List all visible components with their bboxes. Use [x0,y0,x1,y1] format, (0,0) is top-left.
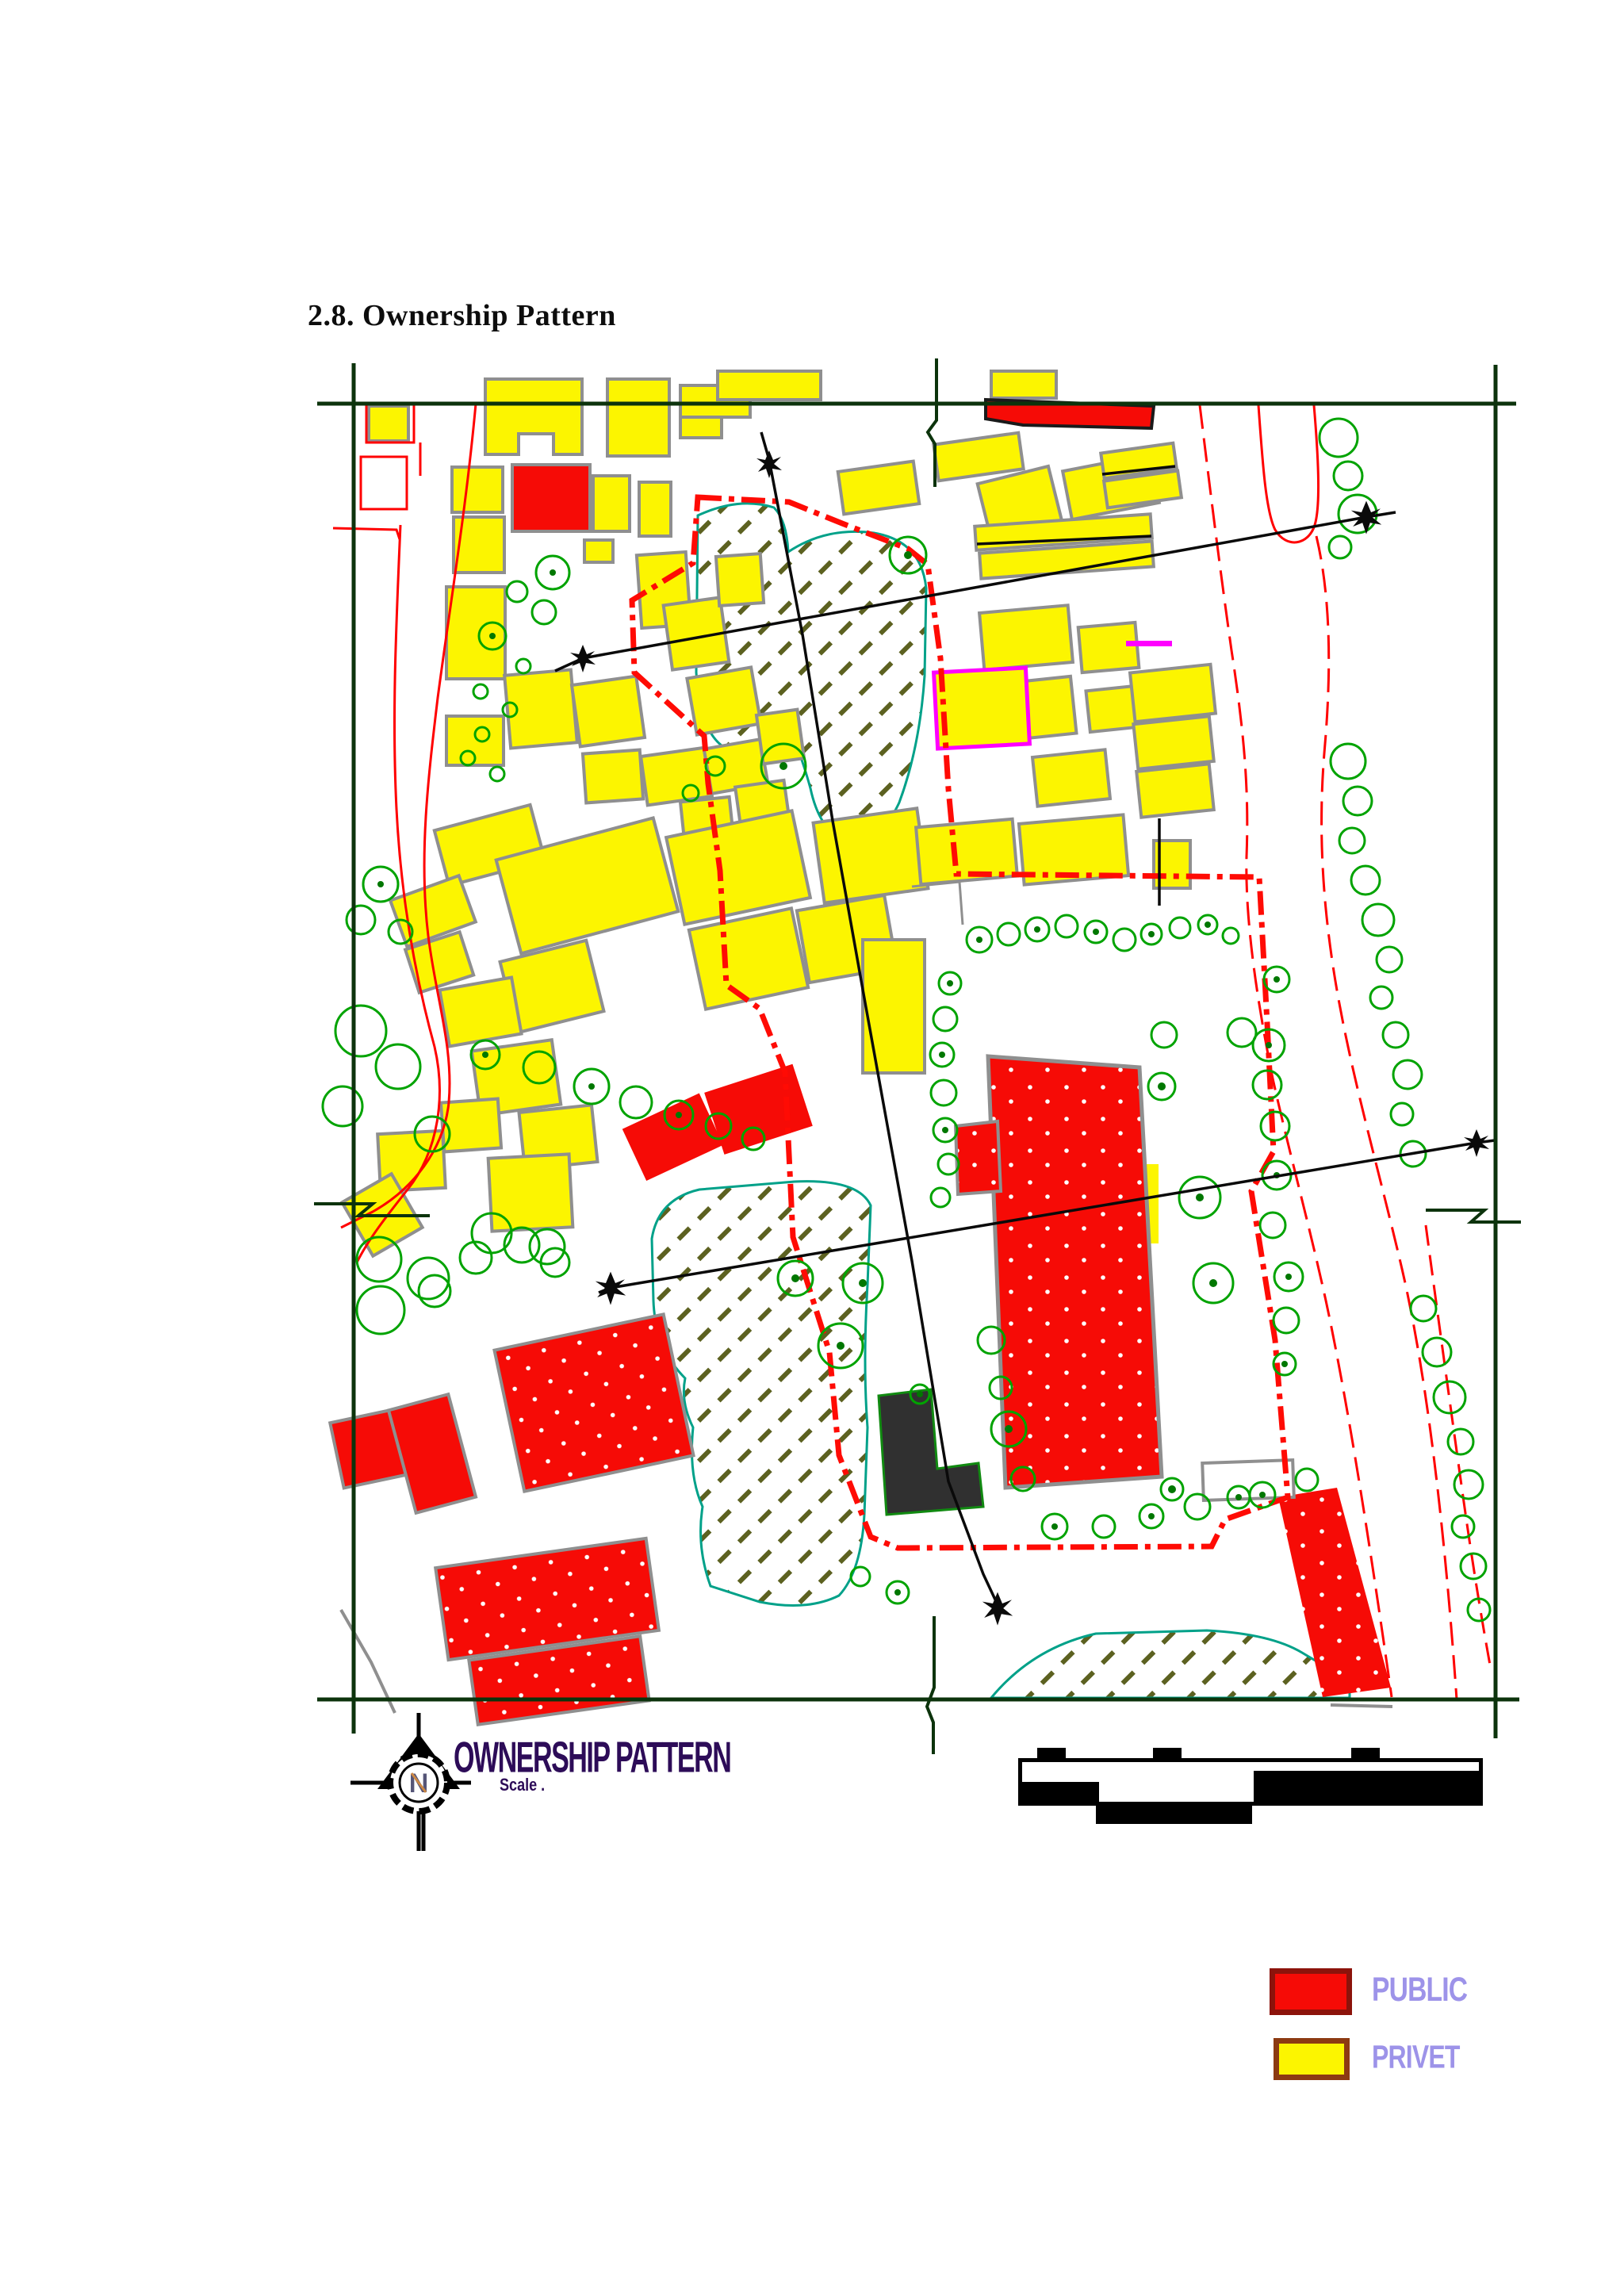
scale-bar-body [1018,1758,1483,1806]
scale-bar-segment [1096,1802,1252,1824]
dark-building [879,1389,983,1515]
map-legend: PUBLIC PRIVET [1270,1965,1603,2092]
legend-swatch-private [1274,2038,1350,2080]
ownership-pattern-map: N [0,0,1624,2295]
scale-bar [1018,1748,1483,1827]
scale-bar-segment [1254,1771,1479,1802]
central-public-building [988,1056,1162,1488]
legend-swatch-public [1270,1968,1352,2015]
map-title: OWNERSHIP PATTERN [454,1732,730,1783]
legend-label-private: PRIVET [1372,2040,1460,2076]
document-page: 2.8. Ownership Pattern [0,0,1624,2295]
hatched-area-lower-left [652,1182,871,1606]
hatched-area-bottom-right [991,1630,1350,1698]
scale-bar-segment [1022,1782,1099,1802]
map-scale-label: Scale . [500,1775,545,1795]
legend-label-public: PUBLIC [1372,1970,1467,2009]
